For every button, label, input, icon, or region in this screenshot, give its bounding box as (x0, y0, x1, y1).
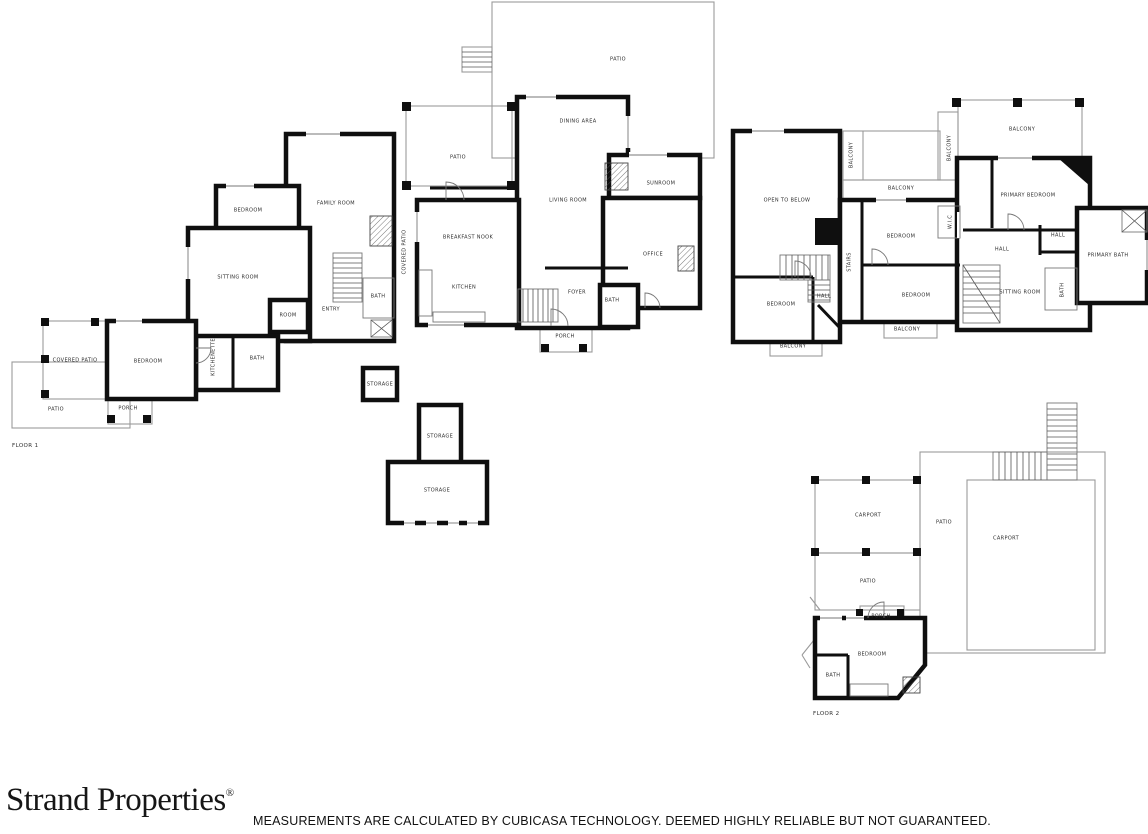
floorplan-canvas: PATIODINING AREAPATIOSUNROOMLIVING ROOMF… (0, 0, 1148, 834)
room-label-bedroom: BEDROOM (234, 208, 263, 214)
room-label-living-room: LIVING ROOM (549, 198, 587, 204)
room-label-storage: STORAGE (424, 488, 450, 494)
floor2-walls (733, 131, 1147, 698)
room-label-porch: PORCH (555, 334, 574, 340)
room-label-sunroom: SUNROOM (647, 181, 676, 187)
room-label-open-to-below: OPEN TO BELOW (764, 198, 811, 204)
room-label-carport: CARPORT (993, 536, 1019, 542)
room-label-porch: PORCH (118, 406, 137, 412)
room-label-entry: ENTRY (322, 307, 340, 313)
room-label-covered-patio: COVERED PATIO (53, 358, 98, 364)
room-label-balcony: BALCONY (888, 186, 914, 192)
room-label-bath: BATH (371, 294, 386, 300)
room-label-kitchenette: KITCHENETTE (211, 338, 217, 376)
room-label-balcony: BALCONY (894, 327, 920, 333)
room-label-patio: PATIO (936, 520, 952, 526)
room-label-hall: HALL (995, 247, 1009, 253)
room-label-office: OFFICE (643, 252, 663, 258)
room-label-bedroom: BEDROOM (887, 234, 916, 240)
room-label-breakfast-nook: BREAKFAST NOOK (443, 235, 493, 241)
room-label-primary-bath: PRIMARY BATH (1088, 253, 1129, 259)
floor1-plan (12, 2, 714, 526)
room-label-stairs: STAIRS (847, 252, 853, 271)
room-label-storage: STORAGE (367, 382, 393, 388)
room-label-balcony: BALCONY (947, 135, 953, 161)
room-label-sitting-room: SITTING ROOM (999, 290, 1040, 296)
room-label-family-room: FAMILY ROOM (317, 201, 355, 207)
room-label-primary-bedroom: PRIMARY BEDROOM (1001, 193, 1056, 199)
room-label-patio: PATIO (610, 57, 626, 63)
registered-mark: ® (226, 787, 234, 799)
room-label-bath: BATH (605, 298, 620, 304)
room-label-bedroom: BEDROOM (767, 302, 796, 308)
floor2-plan (733, 98, 1148, 698)
brand-logo: Strand Properties® (6, 784, 234, 817)
floor2-label: FLOOR 2 (813, 712, 840, 718)
room-label-patio: PATIO (860, 579, 876, 585)
disclaimer-text: MEASUREMENTS ARE CALCULATED BY CUBICASA … (253, 815, 991, 828)
room-label-balcony: BALCONY (849, 142, 855, 168)
floor1-walls (107, 97, 700, 523)
room-label-bedroom: BEDROOM (134, 359, 163, 365)
room-label-bedroom: BEDROOM (858, 652, 887, 658)
brand-name: Strand Properties (6, 782, 226, 818)
room-label-porch: PORCH (871, 614, 890, 620)
room-label-hall: HALL (817, 294, 831, 300)
room-label-dining-area: DINING AREA (559, 119, 596, 125)
room-label-bath: BATH (250, 356, 265, 362)
room-label-foyer: FOYER (568, 290, 586, 296)
room-label-bath: BATH (1060, 283, 1066, 298)
floorplan-svg (0, 0, 1148, 834)
room-label-room: ROOM (279, 313, 296, 319)
room-label-carport: CARPORT (855, 513, 881, 519)
room-label-patio: PATIO (450, 155, 466, 161)
room-label-sitting-room: SITTING ROOM (217, 275, 258, 281)
room-label-w-i-c: W.I.C (948, 215, 954, 229)
room-label-balcony: BALCONY (1009, 127, 1035, 133)
room-label-hall: HALL (1051, 233, 1065, 239)
room-label-balcony: BALCONY (780, 344, 806, 350)
room-label-storage: STORAGE (427, 434, 453, 440)
room-label-patio: PATIO (48, 407, 64, 413)
footer: Strand Properties® MEASUREMENTS ARE CALC… (0, 782, 1148, 834)
room-label-bath: BATH (826, 673, 841, 679)
room-label-kitchen: KITCHEN (452, 285, 476, 291)
floor1-label: FLOOR 1 (12, 444, 39, 450)
room-label-bedroom: BEDROOM (902, 293, 931, 299)
room-label-covered-patio: COVERED PATIO (402, 230, 408, 275)
